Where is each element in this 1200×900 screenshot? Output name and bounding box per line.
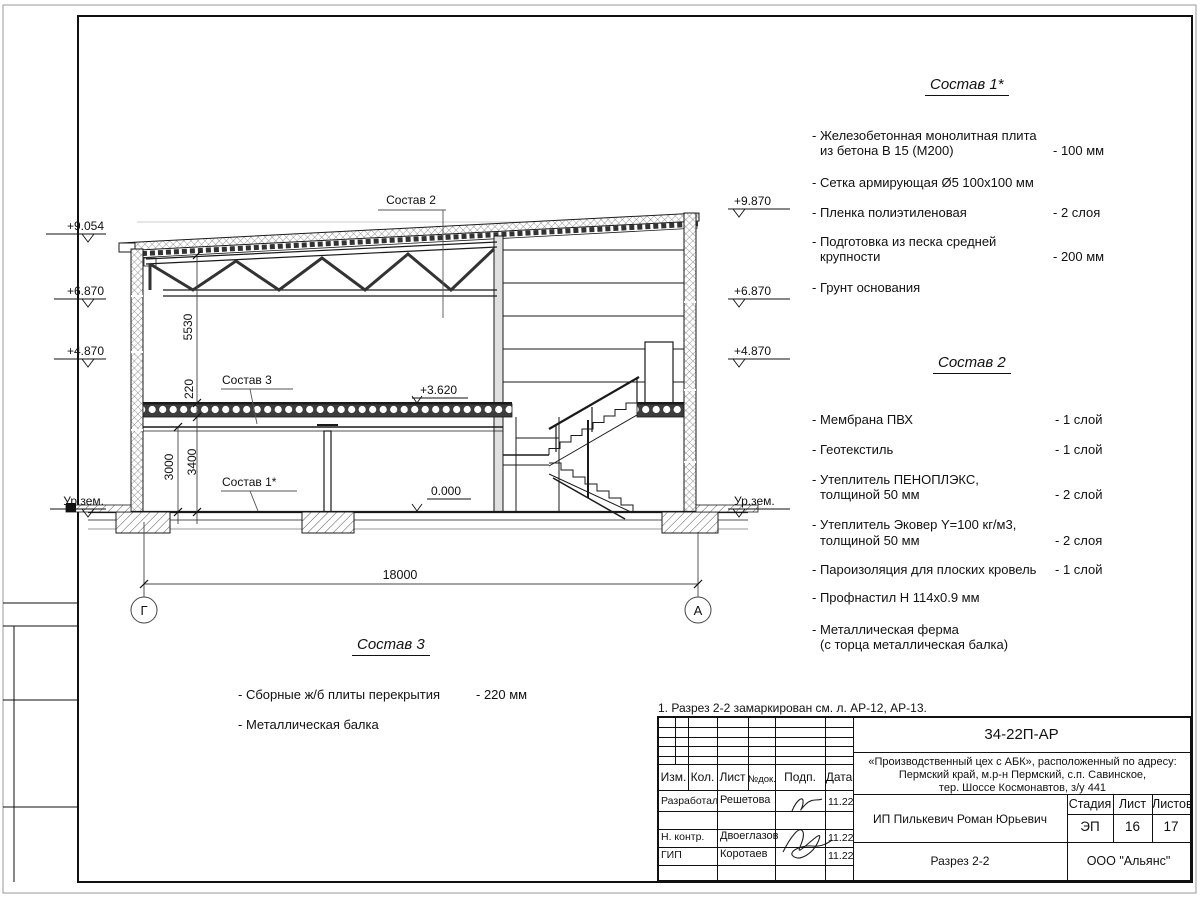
svg-text:+4.870: +4.870	[67, 344, 104, 358]
tb-date: 11.22	[828, 796, 854, 808]
list-item-value: - 220 мм	[476, 687, 527, 702]
tb-project-line3: тер. Шоссе Космонавтов, з/у 441	[855, 782, 1190, 795]
list-item: - Металлическая балка	[238, 717, 379, 732]
svg-text:Состав 2: Состав 2	[386, 193, 436, 207]
foundation-pad	[662, 512, 718, 533]
list-item: - Сетка армирующая Ø5 100x100 мм	[812, 175, 1034, 190]
tb-role: Н. контр.	[661, 831, 704, 843]
tb-name: Коротаев	[720, 848, 768, 860]
foundation-pad	[302, 512, 354, 533]
drawing-sheet: 18000 5530 220 3400 3000 Г А +9.054 +6.8…	[0, 0, 1200, 900]
tb-project-line2: Пермский край, м.р-н Пермский, с.п. Сави…	[855, 769, 1190, 782]
list-item: (с торца металлическая балка)	[820, 637, 1008, 652]
list-item-value: - 200 мм	[1053, 249, 1104, 264]
sostav1-title: Состав 1*	[925, 76, 1009, 96]
interior-wall	[494, 236, 503, 512]
left-wall	[131, 249, 156, 512]
tb-sheet-value: 16	[1113, 819, 1152, 834]
list-item: - Сборные ж/б плиты перекрытия	[238, 687, 440, 702]
right-wall	[684, 213, 696, 531]
tb-header-kol: Кол.	[688, 770, 717, 784]
tb-header-izm: Изм.	[659, 770, 688, 784]
tb-header-list: Лист	[717, 770, 748, 784]
tb-project-line1: «Производственный цех с АБК», расположен…	[855, 756, 1190, 769]
svg-text:+6.870: +6.870	[67, 284, 104, 298]
tb-header-ndok: №док.	[748, 774, 775, 785]
tb-name: Решетова	[720, 794, 770, 806]
sostav2-title: Состав 2	[933, 354, 1011, 374]
foundation-pad	[116, 512, 170, 533]
ground-floor	[66, 503, 758, 533]
axis-left-label: Г	[140, 603, 147, 618]
floor-slab	[143, 403, 684, 417]
tb-header-data: Дата	[825, 770, 853, 784]
list-item-value: - 1 слой	[1055, 562, 1103, 577]
dim-slab-thk: 220	[182, 379, 196, 399]
list-item: - Металлическая ферма	[812, 622, 959, 637]
list-item: - Пароизоляция для плоских кровель	[812, 562, 1036, 577]
sostav3-title: Состав 3	[352, 636, 430, 656]
svg-text:Ур.зем.: Ур.зем.	[734, 494, 775, 508]
elev-slab-3620: +3.620	[412, 383, 468, 403]
tb-role: ГИП	[661, 849, 682, 861]
svg-text:Состав 1*: Состав 1*	[222, 475, 277, 489]
tb-client: ИП Пилькевич Роман Юрьевич	[853, 812, 1067, 826]
building-section	[66, 213, 758, 533]
callout-sostav1: Состав 1*	[221, 475, 297, 511]
sheet-note: 1. Разрез 2-2 замаркирован см. л. АР-12,…	[658, 701, 927, 715]
list-item-value: - 1 слой	[1055, 412, 1103, 427]
tb-doc-number: 34-22П-АР	[853, 726, 1190, 743]
list-item-value: - 2 слоя	[1055, 533, 1102, 548]
list-item-value: - 2 слой	[1055, 487, 1103, 502]
elev-right-6870: +6.870	[728, 284, 790, 307]
list-item: из бетона В 15 (М200)	[820, 143, 954, 158]
tb-company: ООО "Альянс"	[1067, 854, 1190, 868]
left-stamp-column	[3, 603, 78, 882]
list-item: - Утеплитель ПЕНОПЛЭКС,	[812, 472, 979, 487]
tb-header-podp: Подп.	[775, 770, 825, 784]
list-item: толщиной 50 мм	[820, 487, 920, 502]
list-item: крупности	[820, 249, 880, 264]
svg-text:Состав 3: Состав 3	[222, 373, 272, 387]
steel-column	[324, 431, 331, 512]
svg-text:0.000: 0.000	[431, 484, 461, 498]
elev-left-6870: +6.870	[54, 284, 106, 307]
list-item: - Подготовка из песка средней	[812, 234, 996, 249]
list-item-value: - 2 слоя	[1053, 205, 1100, 220]
tb-date: 11.22	[828, 850, 854, 862]
dim-roof-height: 5530	[181, 313, 195, 340]
list-item: - Мембрана ПВХ	[812, 412, 913, 427]
tb-name: Двоеглазов	[720, 830, 778, 842]
tb-header-sheets: Листов	[1152, 797, 1190, 811]
elev-left-4870: +4.870	[54, 344, 106, 367]
elev-right-4870: +4.870	[728, 344, 790, 367]
right-block	[503, 250, 684, 512]
tb-sheet-title: Разрез 2-2	[853, 854, 1067, 868]
list-item: толщиной 50 мм	[820, 533, 920, 548]
list-item: - Утеплитель Эковер Y=100 кг/м3,	[812, 517, 1016, 532]
elev-left-9054: +9.054	[46, 219, 106, 242]
elev-right-9870: +9.870	[728, 194, 790, 217]
staircase	[503, 377, 639, 519]
svg-text:+9.054: +9.054	[67, 219, 104, 233]
list-item: - Грунт основания	[812, 280, 920, 295]
door-opening	[645, 342, 673, 403]
title-block: Изм. Кол. Лист №док. Подп. Дата Разработ…	[657, 716, 1192, 882]
dim-span: 18000	[383, 568, 418, 582]
tb-header-stadia: Стадия	[1067, 797, 1113, 811]
svg-text:+4.870: +4.870	[734, 344, 771, 358]
tb-header-sheet: Лист	[1113, 797, 1152, 811]
list-item: - Геотекстиль	[812, 442, 893, 457]
dimensions: 18000 5530 220 3400 3000	[140, 251, 702, 597]
svg-text:+3.620: +3.620	[420, 383, 457, 397]
list-item-value: - 1 слой	[1055, 442, 1103, 457]
list-item-value: - 100 мм	[1053, 143, 1104, 158]
svg-text:Ур.зем.: Ур.зем.	[63, 494, 104, 508]
tb-date: 11.22	[828, 832, 854, 844]
list-item: - Пленка полиэтиленовая	[812, 205, 967, 220]
elev-right-ground: Ур.зем.	[728, 494, 790, 517]
elev-floor-0000: 0.000	[412, 484, 471, 511]
list-item: - Железобетонная монолитная плита	[812, 128, 1037, 143]
axis-bubbles: Г А	[131, 597, 711, 623]
tb-stadia-value: ЭП	[1067, 819, 1113, 834]
dim-clear-height: 3000	[162, 453, 176, 480]
tb-role: Разработал	[661, 795, 718, 807]
dim-floor-height: 3400	[185, 448, 199, 475]
tb-sheets-value: 17	[1152, 819, 1190, 834]
svg-text:+9.870: +9.870	[734, 194, 771, 208]
list-item: - Профнастил Н 114x0.9 мм	[812, 590, 980, 605]
axis-right-label: А	[694, 603, 703, 618]
svg-text:+6.870: +6.870	[734, 284, 771, 298]
